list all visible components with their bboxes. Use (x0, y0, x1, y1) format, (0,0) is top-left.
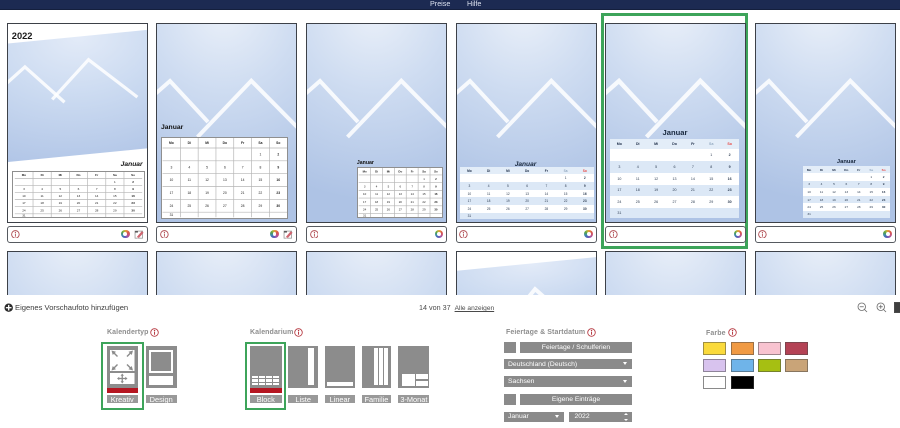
svg-text:11: 11 (40, 194, 43, 198)
svg-text:28: 28 (95, 208, 99, 212)
svg-text:Fr: Fr (95, 173, 99, 177)
svg-text:20: 20 (223, 191, 227, 195)
svg-text:10: 10 (363, 192, 367, 196)
svg-text:12: 12 (205, 178, 209, 182)
svg-text:17: 17 (169, 191, 173, 195)
svg-text:6: 6 (399, 184, 401, 188)
svg-text:Mo: Mo (169, 141, 174, 145)
svg-text:20: 20 (398, 200, 402, 204)
svg-text:5: 5 (387, 184, 389, 188)
svg-text:Do: Do (76, 173, 80, 177)
svg-text:18: 18 (187, 191, 191, 195)
svg-text:Mi: Mi (58, 173, 62, 177)
svg-text:Fr: Fr (241, 141, 245, 145)
svg-text:13: 13 (398, 192, 402, 196)
svg-text:26: 26 (386, 208, 390, 212)
svg-text:10: 10 (22, 194, 26, 198)
svg-text:20: 20 (76, 201, 80, 205)
svg-text:2: 2 (435, 177, 437, 181)
svg-text:14: 14 (410, 192, 414, 196)
svg-text:4: 4 (41, 187, 43, 191)
svg-text:4: 4 (375, 184, 377, 188)
svg-text:24: 24 (22, 208, 26, 212)
svg-text:23: 23 (434, 200, 438, 204)
svg-text:7: 7 (411, 184, 413, 188)
svg-text:25: 25 (187, 204, 191, 208)
svg-text:14: 14 (240, 178, 244, 182)
svg-text:1: 1 (423, 177, 425, 181)
svg-text:30: 30 (131, 208, 135, 212)
svg-text:9: 9 (277, 166, 279, 170)
svg-text:26: 26 (205, 204, 209, 208)
svg-text:18: 18 (375, 200, 379, 204)
svg-text:9: 9 (435, 184, 437, 188)
svg-text:Mo: Mo (21, 173, 26, 177)
svg-text:11: 11 (375, 192, 378, 196)
svg-text:30: 30 (434, 208, 438, 212)
svg-text:5: 5 (59, 187, 61, 191)
svg-text:3: 3 (170, 166, 172, 170)
svg-text:18: 18 (40, 201, 44, 205)
svg-text:Fr: Fr (410, 169, 414, 173)
svg-text:7: 7 (96, 187, 98, 191)
svg-text:2: 2 (277, 153, 279, 157)
svg-text:27: 27 (76, 208, 80, 212)
svg-text:3: 3 (23, 187, 25, 191)
svg-text:28: 28 (410, 208, 414, 212)
svg-text:15: 15 (422, 192, 426, 196)
svg-text:24: 24 (363, 208, 367, 212)
svg-text:3: 3 (363, 184, 365, 188)
svg-text:8: 8 (259, 166, 261, 170)
svg-text:23: 23 (131, 201, 135, 205)
svg-text:9: 9 (132, 187, 134, 191)
svg-text:Di: Di (187, 141, 190, 145)
svg-text:27: 27 (398, 208, 402, 212)
svg-text:So: So (276, 141, 280, 145)
svg-text:Mo: Mo (362, 169, 366, 173)
svg-text:21: 21 (410, 200, 414, 204)
svg-text:12: 12 (386, 192, 390, 196)
svg-text:27: 27 (223, 204, 227, 208)
svg-text:So: So (434, 169, 438, 173)
svg-text:Do: Do (222, 141, 226, 145)
svg-text:21: 21 (240, 191, 244, 195)
svg-text:13: 13 (223, 178, 227, 182)
svg-text:Di: Di (40, 173, 43, 177)
svg-text:13: 13 (76, 194, 80, 198)
svg-text:Sa: Sa (422, 169, 426, 173)
svg-text:Di: Di (375, 169, 378, 173)
svg-text:19: 19 (386, 200, 390, 204)
svg-text:So: So (131, 173, 135, 177)
svg-text:Mi: Mi (386, 169, 389, 173)
svg-text:10: 10 (169, 178, 173, 182)
svg-text:1: 1 (259, 153, 261, 157)
svg-text:26: 26 (58, 208, 62, 212)
svg-text:Sa: Sa (258, 141, 262, 145)
svg-text:12: 12 (58, 194, 62, 198)
svg-text:30: 30 (276, 204, 280, 208)
svg-text:22: 22 (113, 201, 117, 205)
svg-text:Mi: Mi (205, 141, 209, 145)
svg-text:17: 17 (22, 201, 26, 205)
svg-text:22: 22 (422, 200, 426, 204)
svg-text:17: 17 (363, 200, 367, 204)
svg-text:23: 23 (276, 191, 280, 195)
svg-text:15: 15 (258, 178, 262, 182)
svg-text:8: 8 (114, 187, 116, 191)
svg-text:19: 19 (205, 191, 209, 195)
svg-text:29: 29 (113, 208, 117, 212)
svg-text:31: 31 (169, 213, 173, 217)
svg-text:21: 21 (95, 201, 99, 205)
svg-text:31: 31 (22, 213, 26, 217)
svg-text:1: 1 (114, 180, 116, 184)
svg-text:5: 5 (206, 166, 208, 170)
svg-text:16: 16 (131, 194, 135, 198)
svg-text:29: 29 (422, 208, 426, 212)
svg-text:16: 16 (276, 178, 280, 182)
svg-text:16: 16 (434, 192, 438, 196)
svg-text:6: 6 (77, 187, 79, 191)
svg-text:15: 15 (113, 194, 117, 198)
svg-text:25: 25 (375, 208, 379, 212)
svg-text:19: 19 (58, 201, 62, 205)
svg-text:Sa: Sa (113, 173, 117, 177)
svg-text:24: 24 (169, 204, 173, 208)
svg-text:4: 4 (188, 166, 190, 170)
svg-text:14: 14 (95, 194, 99, 198)
svg-text:Do: Do (398, 169, 402, 173)
svg-text:7: 7 (241, 166, 243, 170)
svg-text:22: 22 (258, 191, 262, 195)
svg-text:31: 31 (363, 213, 367, 217)
svg-text:11: 11 (187, 178, 191, 182)
svg-text:8: 8 (423, 184, 425, 188)
svg-text:28: 28 (240, 204, 244, 208)
svg-text:25: 25 (40, 208, 44, 212)
svg-text:2: 2 (132, 180, 134, 184)
svg-text:6: 6 (224, 166, 226, 170)
svg-text:29: 29 (258, 204, 262, 208)
